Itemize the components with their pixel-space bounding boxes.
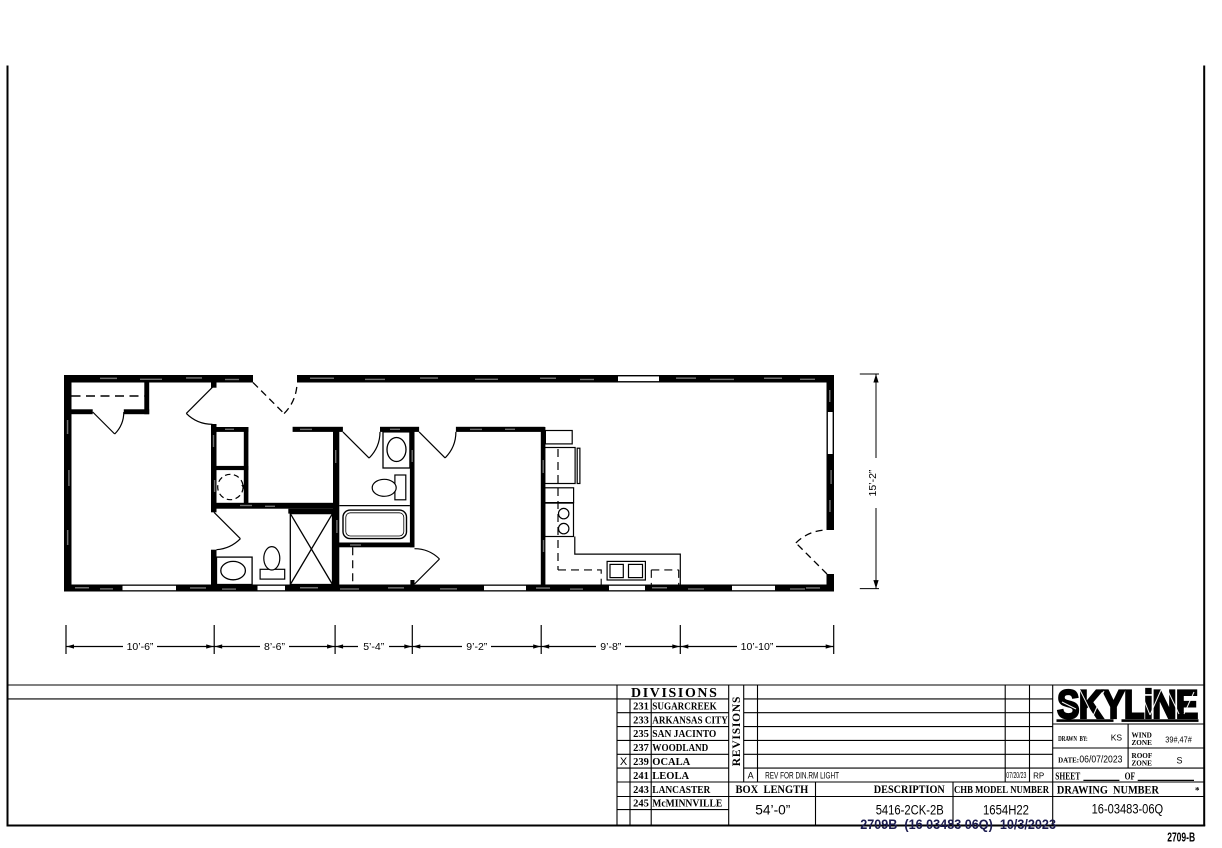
svg-text:REVISIONS: REVISIONS xyxy=(731,696,743,766)
svg-text:9’-2”: 9’-2” xyxy=(466,641,488,653)
svg-text:DRAWN BY:: DRAWN BY: xyxy=(1058,734,1088,743)
svg-text:RP: RP xyxy=(1033,771,1044,780)
svg-text:10’-10”: 10’-10” xyxy=(741,641,774,653)
svg-text:REV FOR DIN.RM LIGHT: REV FOR DIN.RM LIGHT xyxy=(765,770,839,780)
svg-text:1654H22: 1654H22 xyxy=(983,803,1029,818)
svg-text:WOODLAND: WOODLAND xyxy=(652,743,708,754)
svg-text:DATE:: DATE: xyxy=(1058,755,1079,764)
svg-text:DIVISIONS: DIVISIONS xyxy=(631,685,719,700)
svg-text:OCALA: OCALA xyxy=(652,757,690,768)
svg-text:231: 231 xyxy=(633,702,649,713)
svg-text:235: 235 xyxy=(633,729,649,740)
svg-text:McMINNVILLE: McMINNVILLE xyxy=(652,799,722,810)
svg-text:OF: OF xyxy=(1125,771,1136,783)
svg-text:2709-B: 2709-B xyxy=(1167,830,1195,845)
svg-text:2709B (16 03483 06Q) 10/3/20: 2709B (16 03483 06Q) 10/3/2023 xyxy=(860,817,1056,832)
svg-text:5416-2CK-2B: 5416-2CK-2B xyxy=(876,803,944,818)
svg-text:06/07/2023: 06/07/2023 xyxy=(1079,755,1122,766)
svg-text:07/20/23: 07/20/23 xyxy=(1006,771,1026,780)
svg-text:CHB MODEL NUMBER: CHB MODEL NUMBER xyxy=(954,785,1050,796)
svg-text:9’-8”: 9’-8” xyxy=(600,641,622,653)
svg-text:SUGARCREEK: SUGARCREEK xyxy=(652,702,717,713)
svg-text:BOX LENGTH: BOX LENGTH xyxy=(736,784,809,796)
svg-text:DRAWING NUMBER: DRAWING NUMBER xyxy=(1057,782,1159,796)
svg-text:8’-6”: 8’-6” xyxy=(264,641,286,653)
svg-text:SAN JACINTO: SAN JACINTO xyxy=(652,729,716,740)
svg-text:241: 241 xyxy=(633,771,649,782)
svg-text:LEOLA: LEOLA xyxy=(652,771,689,782)
svg-text:39#,47#: 39#,47# xyxy=(1165,734,1192,744)
svg-text:KS: KS xyxy=(1111,733,1123,743)
svg-text:10’-6”: 10’-6” xyxy=(127,641,154,653)
svg-text:*: * xyxy=(1195,785,1200,795)
svg-text:DESCRIPTION: DESCRIPTION xyxy=(874,784,946,796)
svg-text:237: 237 xyxy=(633,743,649,754)
svg-text:ZONE: ZONE xyxy=(1132,760,1153,768)
svg-text:16-03483-06Q: 16-03483-06Q xyxy=(1092,802,1164,817)
svg-text:LANCASTER: LANCASTER xyxy=(652,785,710,796)
svg-text:S: S xyxy=(1177,756,1183,766)
svg-text:A: A xyxy=(748,771,754,781)
svg-text:243: 243 xyxy=(633,785,649,796)
svg-text:X: X xyxy=(620,756,628,768)
svg-text:245: 245 xyxy=(633,799,649,810)
svg-text:SHEET: SHEET xyxy=(1055,771,1080,783)
svg-text:ARKANSAS CITY: ARKANSAS CITY xyxy=(652,715,728,726)
svg-text:5’-4”: 5’-4” xyxy=(363,641,385,653)
svg-text:239: 239 xyxy=(633,757,649,768)
svg-text:ZONE: ZONE xyxy=(1132,739,1153,747)
svg-text:54’-0”: 54’-0” xyxy=(755,803,790,818)
svg-text:15’-2”: 15’-2” xyxy=(867,469,879,496)
svg-text:233: 233 xyxy=(633,715,649,726)
